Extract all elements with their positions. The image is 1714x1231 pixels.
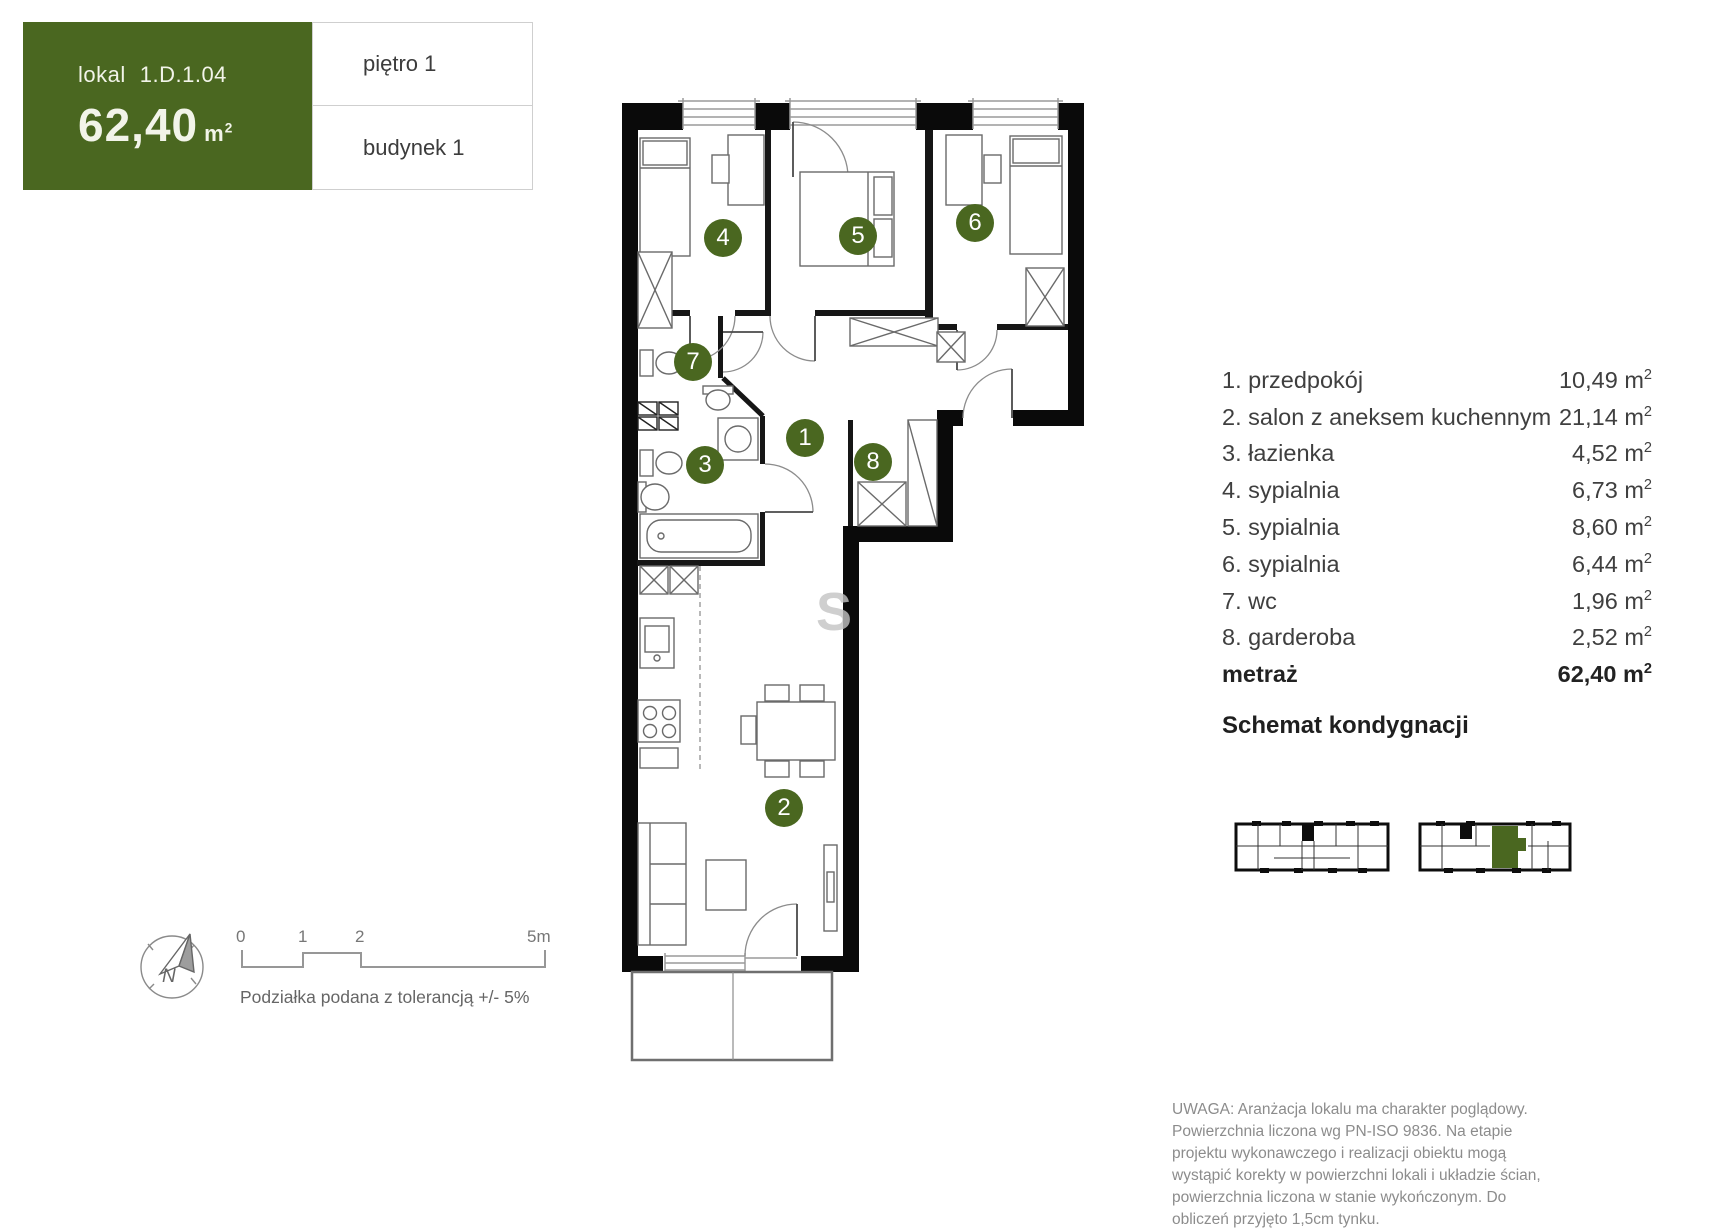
list-item: 3. łazienka4,52 m2	[1222, 436, 1652, 473]
scale-caption: Podziałka podana z tolerancją +/- 5%	[240, 987, 529, 1007]
tv-icon	[824, 845, 837, 931]
building-row: budynek 1	[313, 106, 532, 189]
room-badge-5: 5	[839, 217, 877, 255]
room-badge-8: 8	[854, 443, 892, 481]
room-list: 1. przedpokój10,49 m2 2. salon z aneksem…	[1222, 362, 1652, 693]
window-bedroom5	[785, 96, 921, 133]
scale-bar	[242, 950, 545, 967]
shaft-icon	[638, 402, 678, 430]
list-item: 4. sypialnia6,73 m2	[1222, 472, 1652, 509]
schemat-heading: Schemat kondygnacji	[1222, 712, 1469, 740]
disclaimer-text: UWAGA: Aranżacja lokalu ma charakter pog…	[1172, 1099, 1560, 1231]
north-label: N	[162, 966, 176, 987]
washing-machine-icon	[718, 418, 758, 460]
map-legend: N 0 1 2 5m Podziałka podana z tolerancją…	[120, 915, 570, 1015]
window-bedroom4	[678, 96, 760, 133]
list-item: 8. garderoba2,52 m2	[1222, 620, 1652, 657]
bed-icon	[1010, 136, 1062, 254]
sofa-icon	[638, 823, 686, 945]
svg-text:5m: 5m	[527, 927, 551, 946]
window-bedroom6	[968, 96, 1063, 133]
svg-text:0: 0	[236, 927, 245, 946]
wardrobe-icon	[638, 252, 672, 328]
balcony	[632, 972, 832, 1060]
toilet-icon	[640, 450, 682, 476]
washbasin-icon	[703, 386, 733, 410]
floor-row: piętro 1	[313, 23, 532, 106]
list-item: 6. sypialnia6,44 m2	[1222, 546, 1652, 583]
entrance-opening	[963, 408, 1013, 428]
svg-text:1: 1	[298, 927, 307, 946]
list-total-row: metraż62,40 m2	[1222, 656, 1652, 693]
scale-labels: 0 1 2 5m	[236, 927, 551, 946]
unit-area-value: 62,40	[78, 99, 198, 151]
room-badge-7: 7	[674, 343, 712, 381]
room-badge-6: 6	[956, 204, 994, 242]
bathtub-icon	[640, 514, 758, 558]
hall-wardrobe-icon	[850, 318, 938, 346]
floor-building-card: piętro 1 budynek 1	[312, 22, 533, 190]
dining-table-icon	[741, 685, 835, 777]
building-schematic-left	[1236, 821, 1388, 873]
building-schematics	[1230, 818, 1575, 880]
chair-icon	[984, 155, 1001, 183]
unit-area: 62,40m2	[78, 98, 312, 152]
kitchen-appliances-icon	[638, 566, 700, 770]
unit-id-line: lokal1.D.1.04	[78, 62, 312, 88]
list-item: 7. wc1,96 m2	[1222, 583, 1652, 620]
room-badge-4: 4	[704, 219, 742, 257]
watermark-text: S	[816, 582, 852, 642]
coffee-table-icon	[706, 860, 746, 910]
washbasin-icon	[638, 482, 669, 512]
building-schematic-right	[1420, 821, 1570, 873]
vestibule-closet-icon	[937, 332, 965, 362]
list-item: 5. sypialnia8,60 m2	[1222, 509, 1652, 546]
room-badge-1: 1	[786, 419, 824, 457]
desk-icon	[946, 135, 982, 205]
room-badge-3: 3	[686, 446, 724, 484]
unit-info-card: lokal1.D.1.04 62,40m2	[23, 22, 312, 190]
desk-icon	[728, 135, 764, 205]
chair-icon	[712, 155, 729, 183]
svg-text:2: 2	[355, 927, 364, 946]
bed-icon	[640, 138, 690, 256]
list-item: 1. przedpokój10,49 m2	[1222, 362, 1652, 399]
room-badge-2: 2	[765, 789, 803, 827]
lokal-label: lokal	[78, 62, 126, 87]
list-item: 2. salon z aneksem kuchennym21,14 m2	[1222, 399, 1652, 436]
lokal-id: 1.D.1.04	[140, 62, 227, 87]
wardrobe-icon	[1026, 268, 1064, 326]
